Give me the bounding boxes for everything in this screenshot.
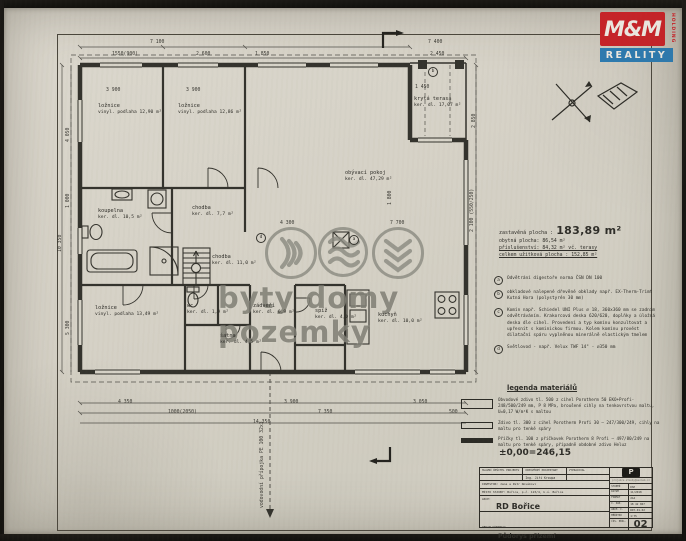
tb-meta-value: RD7-01-02: [629, 508, 652, 513]
tb-meta-value: 2A4: [629, 496, 652, 501]
reference-mark: a: [349, 235, 359, 245]
tb-col2-label: ODPOVĚDNÝ PROJEKTANT: [523, 468, 566, 475]
tb-meta-label: STUPEŇ: [610, 484, 629, 489]
room-label: zádveří ker. dl. 6,9 m²: [253, 303, 295, 316]
legend-text: Obvodové zdivo tl. 500 z cihel Porotherm…: [498, 397, 661, 415]
dimension-label: 3 900: [284, 400, 298, 405]
room-label: kuchyň ker. dl. 10,0 m²: [378, 312, 422, 325]
tb-drawing-title: Půdorys přízemí: [498, 533, 609, 540]
tb-investor: INVESTOR: Jana a Petr Novákovi: [480, 481, 609, 488]
logo-reality-text: REALITY: [606, 50, 668, 61]
dimension-label: 10 350: [58, 235, 63, 252]
logo-mm-text: M&M: [604, 17, 661, 41]
tb-sheet-label: ČÍS. PŘÍL.: [610, 519, 629, 530]
tb-meta-value: 18 42 067: [629, 502, 652, 507]
tb-meta-value: 1:75: [629, 513, 652, 518]
dimension-label: 7 700: [390, 221, 404, 226]
dimension-label: 2 600: [196, 52, 210, 57]
note-key: d: [494, 345, 503, 354]
dimension-label: vodovodní přípojka PE 100 32x3: [260, 421, 265, 508]
room-label: ložnice vinyl. podlaha 12,90 m²: [98, 103, 162, 116]
room-label: obývací pokoj ker. dl. 47,29 m²: [345, 170, 392, 183]
note-key: a: [494, 276, 503, 285]
wall-symbol: [461, 399, 493, 409]
legend-text: Příčky tl. 100 z příčkovek Porotherm 8 P…: [498, 436, 661, 448]
legend-item: Obvodové zdivo tl. 500 z cihel Porotherm…: [461, 397, 661, 415]
title-block: HLAVNÍ ŘEŠITEL PROJEKTU ODPOVĚDNÝ PROJEK…: [479, 467, 653, 528]
note-item: d Světlovod - např. Velux TWF 14" - ⌀350…: [494, 345, 662, 354]
notes-list: a Odvětrání digestoře norma ČSN DN 100 b…: [494, 276, 662, 359]
tb-firm-logo: P: [610, 468, 652, 478]
room-label: krytá terasa ker. dl. 17,07 m²: [414, 96, 461, 109]
dimension-label: 2 850: [472, 114, 477, 128]
tb-meta-label: DATUM: [610, 490, 629, 495]
logo-blue-bar: REALITY: [600, 48, 673, 62]
room-label: šatna ker. dl. 4,5 m²: [220, 333, 262, 346]
tb-col3-label: VYPRACOVAL: [567, 468, 609, 475]
dimension-label: 3 900: [106, 88, 120, 93]
dimension-label: 7 100: [150, 40, 164, 45]
tb-meta-label: Č. ZAK.: [610, 502, 629, 507]
tb-meta-label: ARCH. Č.: [610, 508, 629, 513]
built-area-label: zastavěná plocha :: [499, 230, 553, 236]
usable-area: celkem užitková plocha : 152,85 m²: [499, 253, 659, 258]
dimension-label: 4 300: [280, 221, 294, 226]
reference-mark: d: [256, 233, 266, 243]
room-label: koupelna ker. dl. 10,5 m²: [98, 208, 142, 221]
living-area: obytná plocha: 86,54 m²: [499, 239, 659, 244]
legend-item: Příčky tl. 100 z příčkovek Porotherm 8 P…: [461, 436, 661, 448]
dimension-label: 7 350: [318, 410, 332, 415]
note-key: c: [494, 308, 503, 317]
dimension-label: 500: [449, 410, 458, 415]
room-label: spíž ker. dl. 4,0 m²: [315, 308, 357, 321]
mm-reality-logo: M&M HOLDING REALITY: [600, 10, 680, 64]
note-item: c Komín např. Schiedel UNI Plus ⌀ 18, 36…: [494, 308, 662, 340]
tb-akce-label: AKCE:: [482, 497, 609, 501]
reference-mark: b: [428, 67, 438, 77]
tb-meta-value: DSP: [629, 484, 652, 489]
dimension-label: 3 050: [413, 400, 427, 405]
firm-p-mark: P: [622, 468, 640, 477]
logo-holding-text: HOLDING: [667, 13, 675, 46]
dimension-label: 1 850: [255, 52, 269, 57]
dimension-label: 4 050: [66, 128, 71, 142]
tb-content-label: OBSAH VÝKRESU:: [482, 525, 506, 529]
dimension-label: 2 450: [430, 52, 444, 57]
dimension-label: 1 800: [388, 191, 393, 205]
material-legend: legenda materiálů Obvodové zdivo tl. 500…: [461, 384, 661, 453]
room-label: wc ker. dl. 1,9 m²: [187, 303, 229, 316]
dimension-label: 7 400: [428, 40, 442, 45]
wall-symbol: [461, 422, 493, 429]
logo-red-box: M&M: [600, 12, 665, 46]
watermark-icons: [262, 224, 442, 286]
tb-place: MÍSTO STAVBY: Bořice, p.č. 123/4, k.ú. B…: [480, 489, 609, 496]
note-text: Světlovod - např. Velux TWF 14" - ⌀350 m…: [507, 345, 615, 354]
tb-sheet-number: 02: [629, 519, 652, 530]
built-area-value: 183,89 m²: [556, 224, 621, 237]
room-label: ložnice vinyl. podlaha 13,49 m²: [95, 305, 159, 318]
note-text: Komín např. Schiedel UNI Plus ⌀ 18, 360x…: [507, 308, 662, 340]
legend-text: Zdivo tl. 300 z cihel Porotherm Profi 30…: [498, 420, 661, 432]
legend-item: Zdivo tl. 300 z cihel Porotherm Profi 30…: [461, 420, 661, 432]
tb-meta-label: FORMÁT: [610, 496, 629, 501]
dimension-label: 3 900: [186, 88, 200, 93]
area-summary: zastavěná plocha : 183,89 m² obytná ploc…: [499, 224, 659, 258]
note-text: Odvětrání digestoře norma ČSN DN 100: [507, 276, 602, 285]
note-item: b obkladové nalepené dřevěné obklady nap…: [494, 290, 662, 303]
room-label: chodba ker. dl. 7,7 m²: [192, 205, 234, 218]
room-label: chodba ker. dl. 11,0 m²: [212, 254, 256, 267]
dimension-label: 2 100 (550/250): [470, 189, 475, 232]
wall-symbol: [461, 438, 493, 443]
tb-project-name: RD Bořice: [496, 502, 609, 511]
dimension-label: 1 450: [415, 85, 429, 90]
dimension-label: 1000(2050): [168, 410, 197, 415]
dimension-label: 4 350: [118, 400, 132, 405]
note-key: b: [494, 290, 503, 299]
tb-meta-label: MĚŘÍTKO: [610, 513, 629, 518]
level-datum: ±0,00=246,15: [499, 448, 571, 458]
tb-meta-value: 11/2018: [629, 490, 652, 495]
accessory-area: příslušenství: 84,32 m² vč. terasy: [499, 246, 659, 251]
note-item: a Odvětrání digestoře norma ČSN DN 100: [494, 276, 662, 285]
tb-col1-label: HLAVNÍ ŘEŠITEL PROJEKTU: [480, 468, 523, 475]
dimension-label: 5 300: [66, 321, 71, 335]
note-text: obkladové nalepené dřevěné obklady např.…: [507, 290, 662, 303]
scanned-floorplan-sheet: { "logo": { "mm": "M&M", "reality": "REA…: [0, 0, 686, 541]
room-label: ložnice vinyl. podlaha 12,86 m²: [178, 103, 242, 116]
legend-title: legenda materiálů: [507, 384, 661, 392]
dimension-label: 1 000: [66, 194, 71, 208]
dimension-label: 1550(900): [112, 52, 138, 57]
